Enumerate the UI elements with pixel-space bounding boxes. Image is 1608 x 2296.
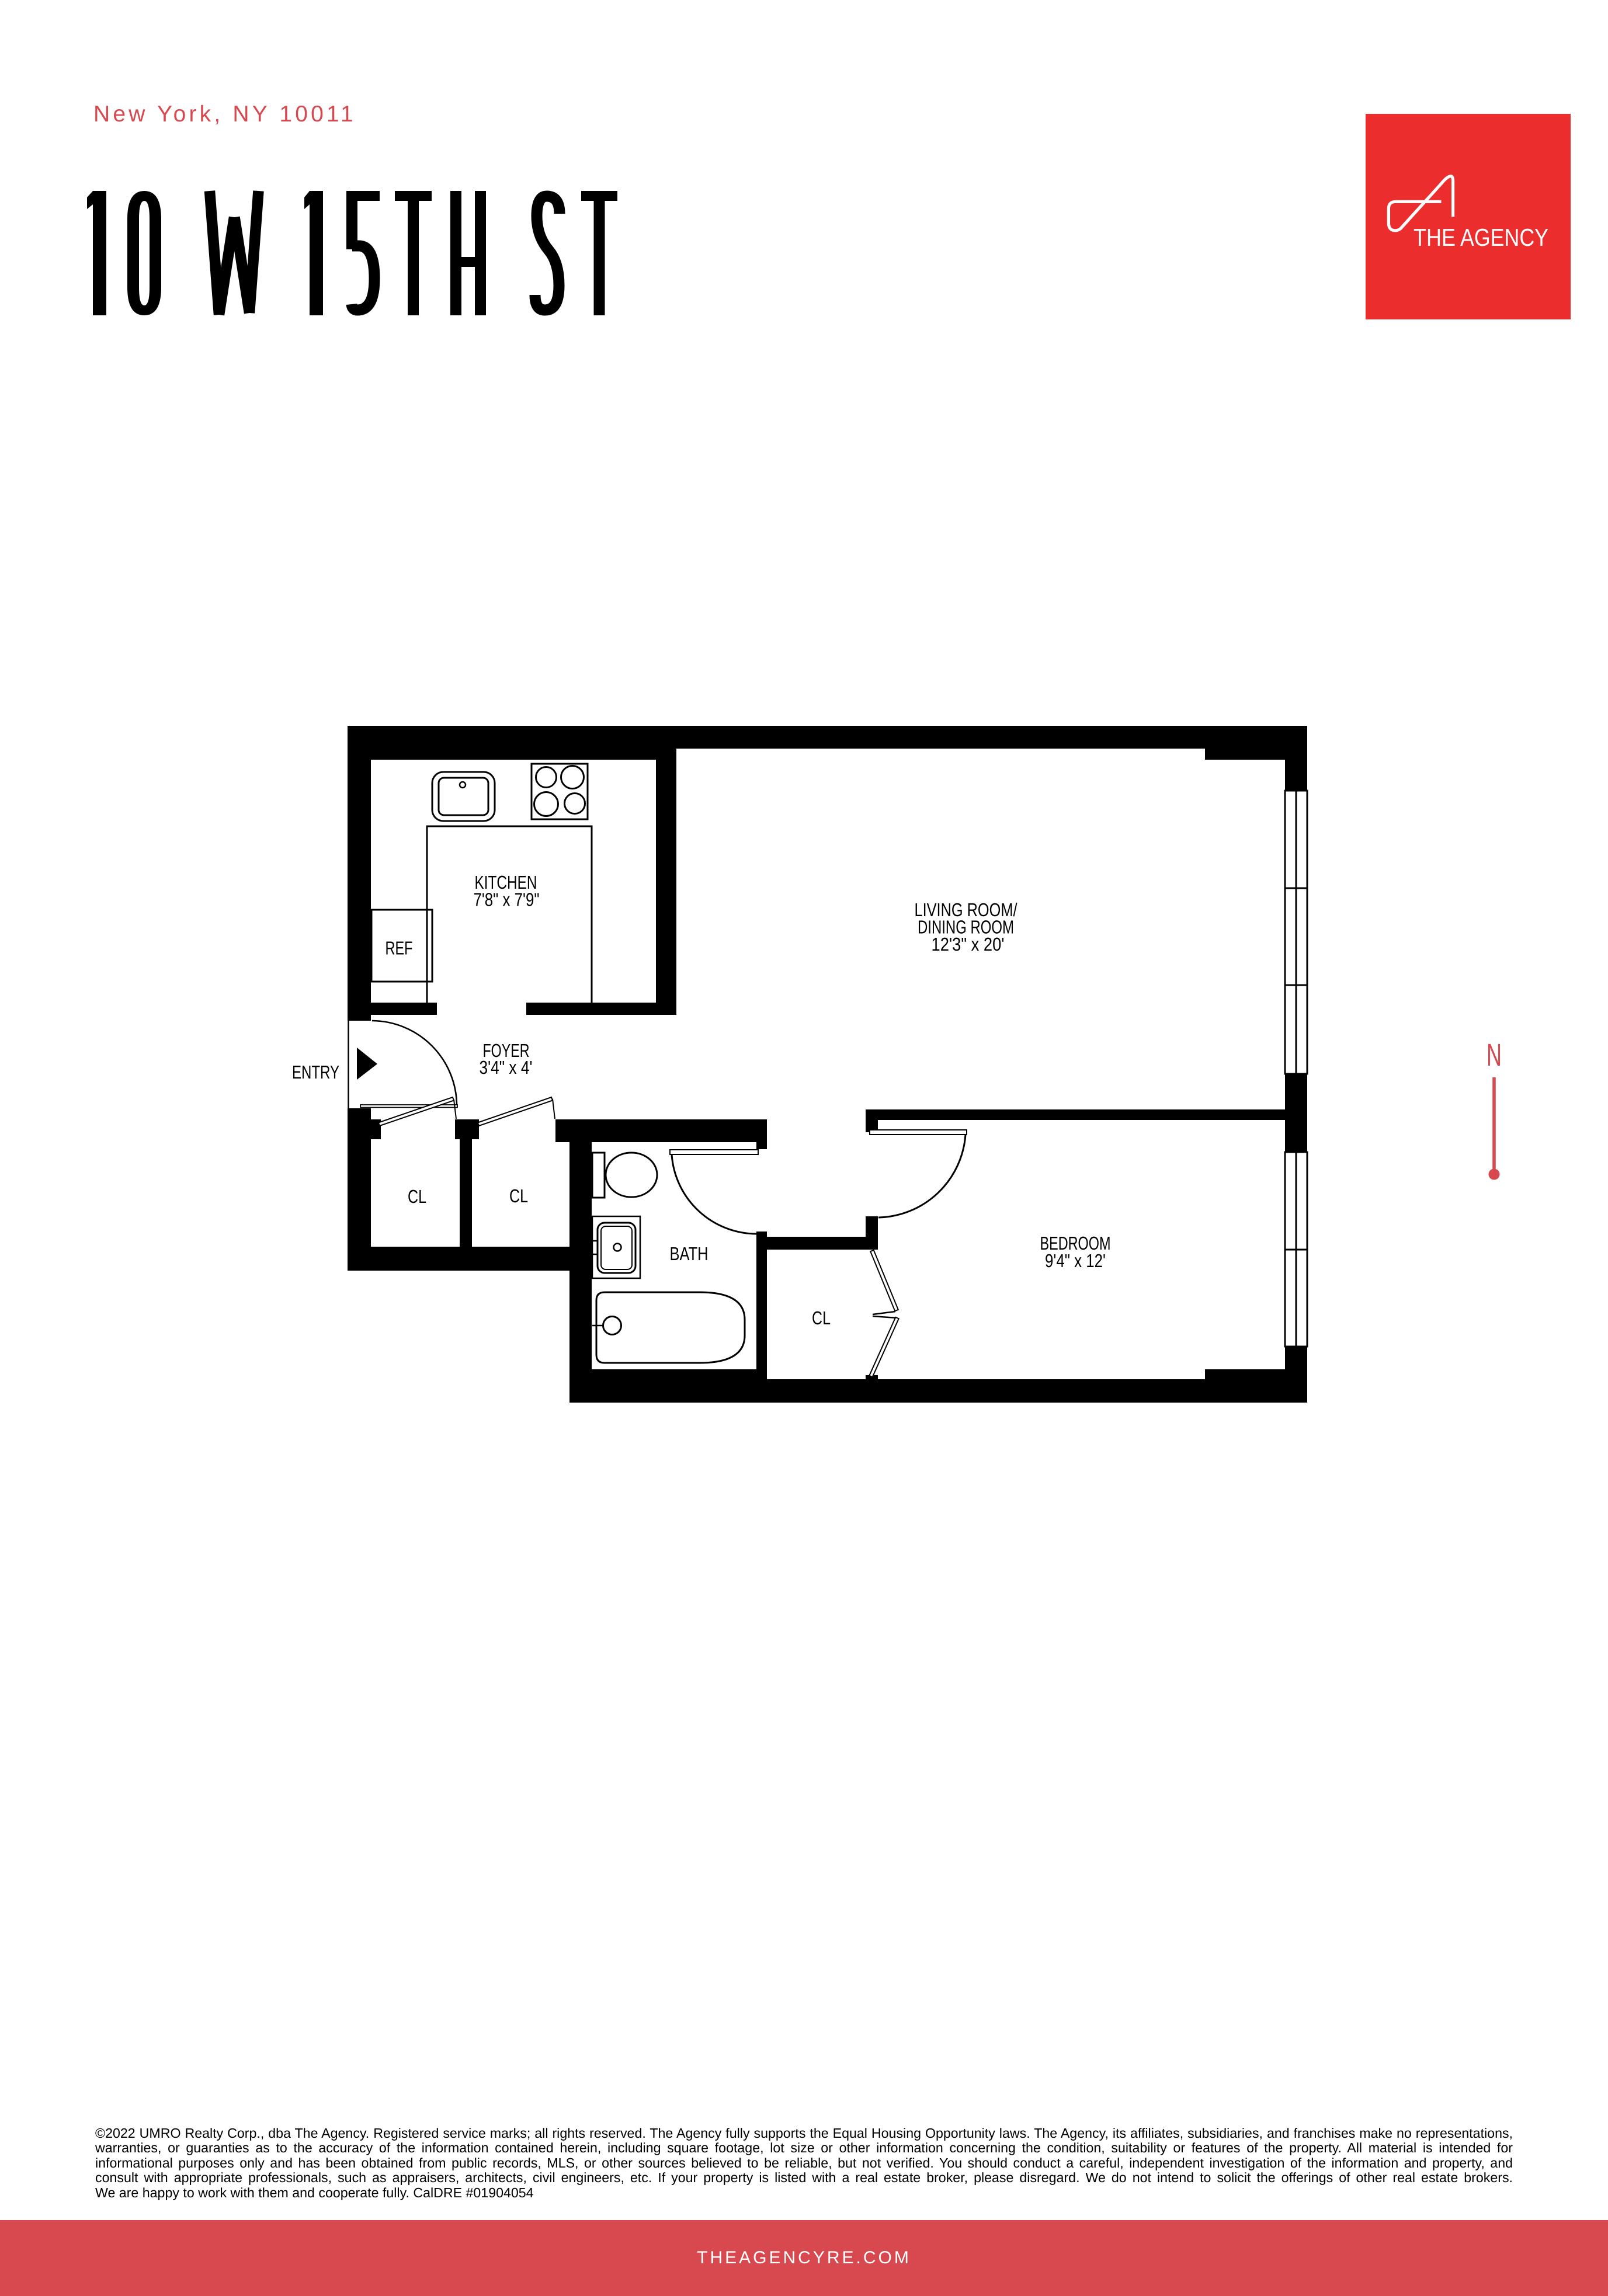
- svg-text:BATH: BATH: [670, 1243, 709, 1264]
- svg-text:CL: CL: [408, 1186, 426, 1207]
- svg-text:ENTRY: ENTRY: [292, 1062, 339, 1083]
- svg-text:CL: CL: [812, 1307, 831, 1328]
- svg-text:THE: THE: [1413, 224, 1456, 251]
- svg-text:3'4" x 4': 3'4" x 4': [480, 1057, 533, 1078]
- svg-text:9'4" x 12': 9'4" x 12': [1045, 1250, 1106, 1271]
- svg-text:7'8" x 7'9": 7'8" x 7'9": [474, 889, 540, 910]
- svg-text:REF: REF: [385, 938, 413, 959]
- svg-text:12'3" x 20': 12'3" x 20': [932, 934, 1005, 955]
- svg-text:N: N: [1487, 1038, 1502, 1073]
- svg-text:AGENCY: AGENCY: [1460, 224, 1548, 251]
- svg-text:CL: CL: [509, 1185, 528, 1206]
